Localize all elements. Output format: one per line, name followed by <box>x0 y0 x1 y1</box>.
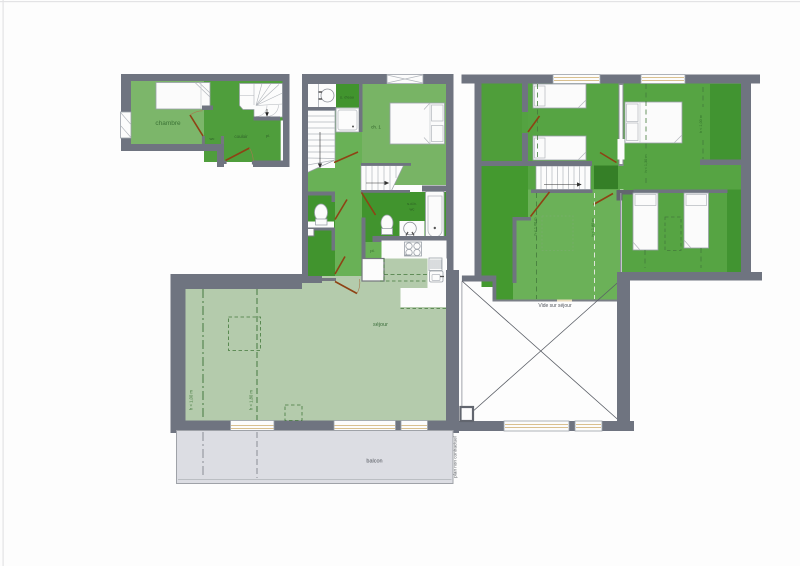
svg-text:séjour: séjour <box>373 322 388 328</box>
svg-text:wc: wc <box>210 136 215 141</box>
svg-text:chambre: chambre <box>155 120 181 127</box>
svg-text:ch. 1: ch. 1 <box>371 125 381 130</box>
svg-text:couloir: couloir <box>234 134 248 139</box>
svg-text:h < 1,00 m: h < 1,00 m <box>189 390 194 410</box>
svg-text:plan non contractuel: plan non contractuel <box>453 436 458 477</box>
svg-text:h < 1,00 m: h < 1,00 m <box>699 115 703 133</box>
svg-text:h < 1,80 m: h < 1,80 m <box>591 218 595 236</box>
svg-text:h < 1,30 m: h < 1,30 m <box>644 154 648 172</box>
svg-text:Vide sur séjour: Vide sur séjour <box>538 303 572 309</box>
svg-text:h < 1,00 m: h < 1,00 m <box>534 217 538 235</box>
svg-text:h < 1,80 m: h < 1,80 m <box>249 390 254 410</box>
svg-text:s. d'eau: s. d'eau <box>340 95 354 100</box>
svg-text:pl.: pl. <box>370 248 374 253</box>
svg-text:s.d.b.: s.d.b. <box>407 201 417 206</box>
svg-text:pl.: pl. <box>266 133 270 138</box>
svg-text:wc: wc <box>410 207 415 212</box>
svg-text:balcon: balcon <box>366 459 382 465</box>
